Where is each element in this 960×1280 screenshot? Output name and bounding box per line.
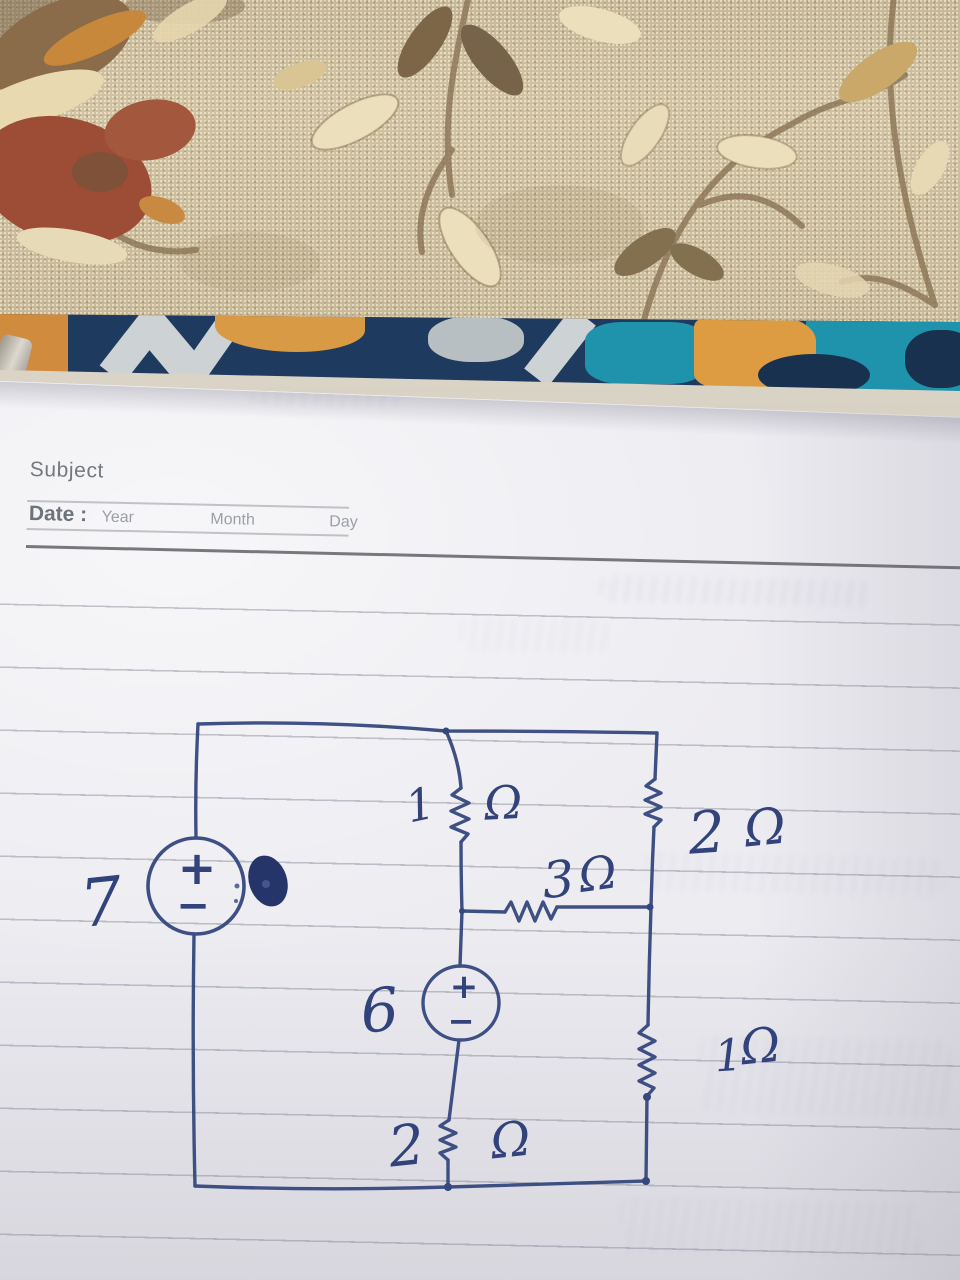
circuit-wire-middle-2	[461, 842, 462, 911]
photo-scene: Subject Date : Year Month Day	[0, 0, 960, 1280]
circuit-wire-left-lower	[193, 934, 195, 1186]
resistor-bottom-middle-unit: Ω	[487, 1111, 533, 1171]
carpet-leaf	[304, 84, 406, 161]
carpet-leaf	[612, 97, 678, 173]
carpet-pattern	[0, 0, 960, 330]
carpet-background	[0, 0, 960, 330]
resistor-bottom-middle	[440, 1120, 456, 1160]
circuit-wire-left-upper	[196, 724, 198, 838]
carpet-leaf	[451, 15, 534, 104]
resistor-top-right	[645, 779, 661, 827]
ink-dot	[235, 884, 240, 889]
carpet-stem	[700, 196, 802, 226]
source-6-minus-sign: −	[448, 1002, 475, 1040]
book-cover-navy-blob	[905, 330, 960, 388]
circuit-wire-middle-4	[449, 1040, 459, 1120]
circuit-wire-3ohm-left	[462, 911, 505, 912]
resistor-top-middle-unit: Ω	[482, 775, 524, 831]
book-cover-white-patch	[428, 316, 524, 362]
junction-dot	[444, 1183, 452, 1191]
resistor-middle-value: 3	[540, 849, 577, 910]
source-6-plus-sign: +	[450, 967, 479, 1007]
source-7-minus-sign: −	[176, 883, 210, 929]
resistor-lower-right-unit: Ω	[737, 1017, 783, 1077]
circuit-wire-top	[198, 723, 657, 733]
carpet-leaf	[791, 256, 872, 305]
carpet-leaf	[830, 31, 926, 113]
junction-dot	[459, 908, 465, 914]
resistor-top-middle	[451, 788, 469, 842]
source-7-value: 7	[76, 862, 126, 943]
carpet-leaf	[555, 0, 644, 51]
resistor-top-right-value: 2	[685, 797, 728, 867]
carpet-shade	[180, 232, 320, 292]
book-cover-teal-patch	[585, 322, 707, 384]
resistor-bottom-middle-value: 2	[384, 1112, 427, 1180]
carpet-leaf	[903, 135, 957, 201]
junction-dot	[647, 904, 654, 911]
circuit-wire-right-3	[648, 907, 651, 1025]
source-6-value: 6	[358, 975, 402, 1048]
ink-blob-highlight	[262, 880, 270, 888]
carpet-leaves	[0, 0, 957, 304]
circuit-wire-right-4	[646, 1096, 647, 1181]
carpet-leaf	[72, 152, 128, 192]
circuit-wire-middle-3	[460, 911, 462, 966]
circuit-wire-right-1	[655, 733, 657, 779]
resistor-middle-unit: Ω	[574, 844, 620, 903]
circuit-wire-right-2	[651, 827, 654, 907]
carpet-leaf	[270, 54, 331, 96]
circuit-wire-bottom	[195, 1181, 646, 1189]
junction-dot	[443, 728, 450, 735]
junction-dot	[642, 1177, 650, 1185]
resistor-lower-right	[639, 1025, 655, 1096]
junction-dot	[643, 1093, 651, 1101]
carpet-shade	[475, 185, 645, 265]
ink-dot	[234, 899, 238, 903]
circuit-wire-middle-1	[446, 731, 461, 788]
resistor-top-middle-value: 1	[401, 778, 439, 834]
resistor-top-right-unit: Ω	[740, 796, 788, 858]
junction-dots	[443, 728, 654, 1192]
